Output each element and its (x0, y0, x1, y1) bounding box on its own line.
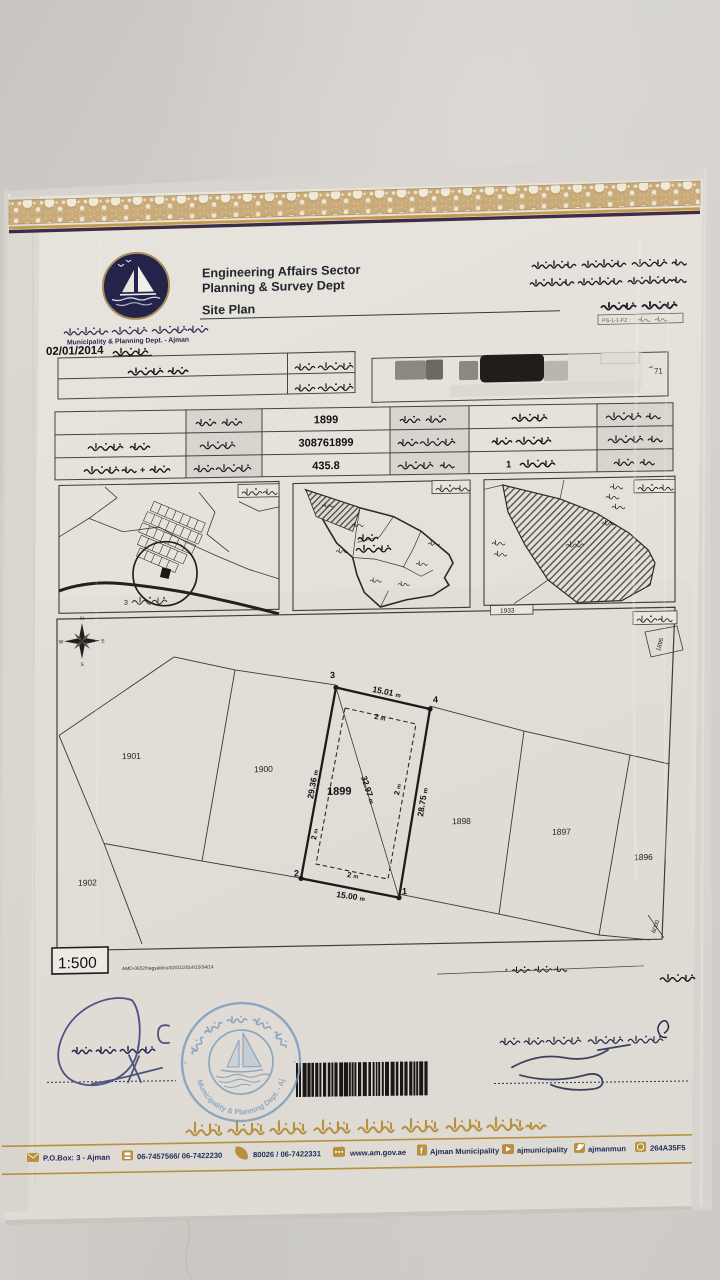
svg-text:*: * (505, 968, 508, 975)
svg-text:ajmanmun: ajmanmun (588, 1144, 626, 1154)
svg-text:308761899: 308761899 (298, 437, 353, 450)
svg-text:Site Plan: Site Plan (202, 302, 255, 317)
svg-text:1933: 1933 (500, 608, 515, 615)
svg-text:www.am.gov.ae: www.am.gov.ae (349, 1148, 406, 1158)
svg-text:1900: 1900 (254, 764, 273, 774)
svg-text:1901: 1901 (122, 751, 141, 761)
svg-text:3: 3 (124, 600, 128, 607)
svg-text:06-7457566/ 06-7422230: 06-7457566/ 06-7422230 (137, 1151, 222, 1161)
svg-text:1902: 1902 (78, 877, 97, 887)
svg-text:264A35F5: 264A35F5 (650, 1143, 686, 1153)
svg-text:P.O.Box: 3 - Ajman: P.O.Box: 3 - Ajman (43, 1153, 110, 1163)
svg-text:1899: 1899 (327, 786, 351, 798)
svg-text:2: 2 (294, 868, 299, 878)
svg-text:*: * (293, 1060, 296, 1067)
svg-text:1899: 1899 (314, 414, 338, 426)
svg-text:1897: 1897 (552, 827, 571, 837)
svg-text:71: 71 (654, 367, 663, 376)
svg-text:1:500: 1:500 (58, 955, 97, 973)
svg-text:ajmunicipality: ajmunicipality (517, 1145, 568, 1155)
svg-text:02/01/2014: 02/01/2014 (46, 345, 104, 358)
svg-text:3: 3 (330, 670, 335, 680)
svg-text:N: N (80, 616, 84, 622)
svg-text:*: * (184, 1062, 187, 1069)
svg-text:1898: 1898 (452, 816, 471, 826)
svg-text:1: 1 (402, 886, 407, 896)
svg-text:f: f (420, 1145, 423, 1155)
svg-text:1: 1 (506, 459, 512, 470)
svg-text:4: 4 (433, 695, 438, 705)
svg-text:+: + (140, 465, 145, 475)
svg-text:Ajman Municipality: Ajman Municipality (430, 1146, 500, 1156)
svg-text:80026 / 06-7422331: 80026 / 06-7422331 (253, 1149, 322, 1159)
svg-text:435.8: 435.8 (312, 460, 340, 472)
svg-text:PS-1-1-F2 :: PS-1-1-F2 : (602, 318, 631, 325)
svg-text:W: W (59, 639, 64, 645)
